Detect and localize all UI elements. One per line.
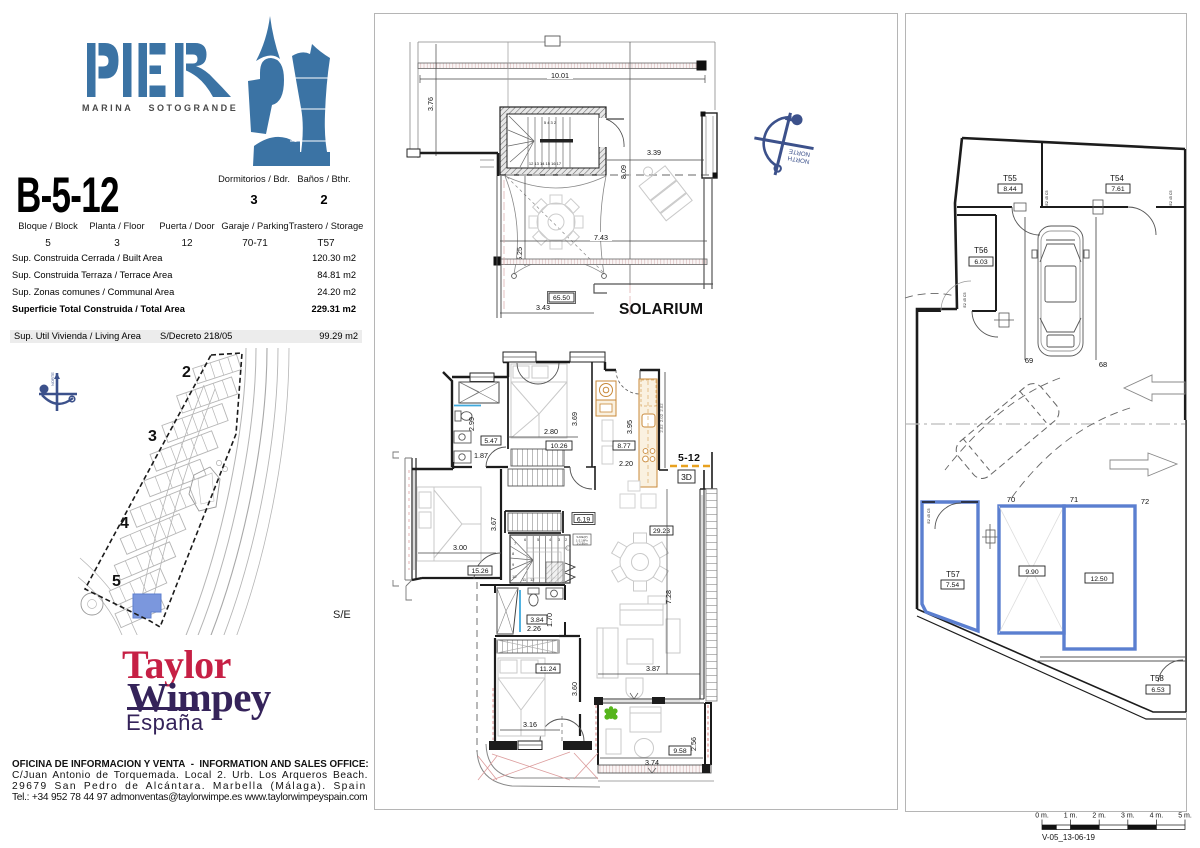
svg-text:2.02 2.02 2.02: 2.02 2.02 2.02 xyxy=(659,403,664,433)
svg-text:2.20: 2.20 xyxy=(619,459,633,468)
svg-text:E2 45 C5: E2 45 C5 xyxy=(963,293,967,308)
svg-text:3.84: 3.84 xyxy=(530,617,543,624)
svg-text:6.03: 6.03 xyxy=(974,259,987,266)
svg-text:3 m.: 3 m. xyxy=(1121,813,1135,820)
svg-text:29.23: 29.23 xyxy=(653,528,670,535)
svg-text:3.95: 3.95 xyxy=(625,420,634,434)
svg-text:T55: T55 xyxy=(1003,174,1017,183)
svg-text:7.43: 7.43 xyxy=(594,233,608,242)
svg-text:3.16: 3.16 xyxy=(523,720,537,729)
svg-text:1.87: 1.87 xyxy=(474,451,488,460)
svg-text:2: 2 xyxy=(565,537,568,542)
svg-text:7: 7 xyxy=(514,541,517,546)
svg-text:8.09: 8.09 xyxy=(619,165,628,179)
svg-text:7.61: 7.61 xyxy=(1111,186,1124,193)
svg-text:8.44: 8.44 xyxy=(1003,186,1016,193)
svg-text:69: 69 xyxy=(1025,356,1033,365)
svg-text:5 m.: 5 m. xyxy=(1178,813,1192,820)
svg-text:5 4 3 2: 5 4 3 2 xyxy=(544,120,557,125)
svg-text:3.74: 3.74 xyxy=(645,758,659,767)
svg-text:1-2.80m: 1-2.80m xyxy=(576,542,588,546)
svg-text:T57: T57 xyxy=(946,570,960,579)
svg-text:2.80: 2.80 xyxy=(544,427,558,436)
svg-text:3.76: 3.76 xyxy=(426,97,435,111)
svg-text:70: 70 xyxy=(1007,495,1015,504)
svg-text:3.87: 3.87 xyxy=(646,664,660,673)
svg-text:7.54: 7.54 xyxy=(946,582,959,589)
svg-text:15.26: 15.26 xyxy=(471,568,488,575)
svg-text:12: 12 xyxy=(530,577,535,582)
svg-text:10.01: 10.01 xyxy=(551,71,569,80)
svg-text:T58: T58 xyxy=(1150,674,1164,683)
svg-text:2.26: 2.26 xyxy=(527,624,541,633)
svg-text:E2 45 C5: E2 45 C5 xyxy=(1169,191,1173,206)
svg-text:SOLARIUM: SOLARIUM xyxy=(619,301,703,318)
svg-text:3D: 3D xyxy=(681,472,692,482)
svg-text:71: 71 xyxy=(1070,495,1078,504)
svg-text:T54: T54 xyxy=(1110,174,1124,183)
svg-text:T56: T56 xyxy=(974,246,988,255)
svg-text:8.77: 8.77 xyxy=(617,443,630,450)
svg-text:10.26: 10.26 xyxy=(550,443,567,450)
svg-text:11.24: 11.24 xyxy=(540,666,557,673)
svg-text:68: 68 xyxy=(1099,360,1107,369)
svg-text:1.70: 1.70 xyxy=(545,613,554,627)
svg-text:E2 45 C5: E2 45 C5 xyxy=(927,509,931,524)
svg-text:5-12: 5-12 xyxy=(678,452,700,464)
svg-text:9.90: 9.90 xyxy=(1025,569,1038,576)
svg-text:65.50: 65.50 xyxy=(553,295,570,302)
svg-text:2 m.: 2 m. xyxy=(1092,813,1106,820)
svg-text:5.47: 5.47 xyxy=(484,438,497,445)
svg-text:12 13 14 15 16 17: 12 13 14 15 16 17 xyxy=(529,161,562,166)
svg-text:3: 3 xyxy=(558,537,561,542)
svg-text:3.67: 3.67 xyxy=(489,517,498,531)
svg-text:72: 72 xyxy=(1141,497,1149,506)
svg-text:10: 10 xyxy=(512,574,517,579)
svg-text:V-05_13-06-19: V-05_13-06-19 xyxy=(1042,833,1095,842)
svg-text:3.60: 3.60 xyxy=(570,682,579,696)
svg-text:7.28: 7.28 xyxy=(664,590,673,604)
svg-text:4 m.: 4 m. xyxy=(1150,813,1164,820)
svg-text:6.53: 6.53 xyxy=(1151,687,1164,694)
svg-text:11: 11 xyxy=(522,577,527,582)
svg-text:8: 8 xyxy=(512,551,515,556)
svg-text:12.50: 12.50 xyxy=(1090,576,1107,583)
svg-text:6: 6 xyxy=(524,537,527,542)
svg-text:2.56: 2.56 xyxy=(689,737,698,751)
svg-text:6.19: 6.19 xyxy=(577,517,590,524)
svg-text:1 m.: 1 m. xyxy=(1064,813,1078,820)
svg-text:9.58: 9.58 xyxy=(673,748,686,755)
svg-text:9: 9 xyxy=(512,562,515,567)
svg-text:3.69: 3.69 xyxy=(570,412,579,426)
svg-text:0 m.: 0 m. xyxy=(1035,813,1049,820)
svg-text:2.99: 2.99 xyxy=(467,417,476,431)
svg-text:E2 45 C5: E2 45 C5 xyxy=(1045,191,1049,206)
svg-text:3.39: 3.39 xyxy=(647,148,661,157)
svg-text:3.43: 3.43 xyxy=(536,303,550,312)
svg-text:3.00: 3.00 xyxy=(453,543,467,552)
